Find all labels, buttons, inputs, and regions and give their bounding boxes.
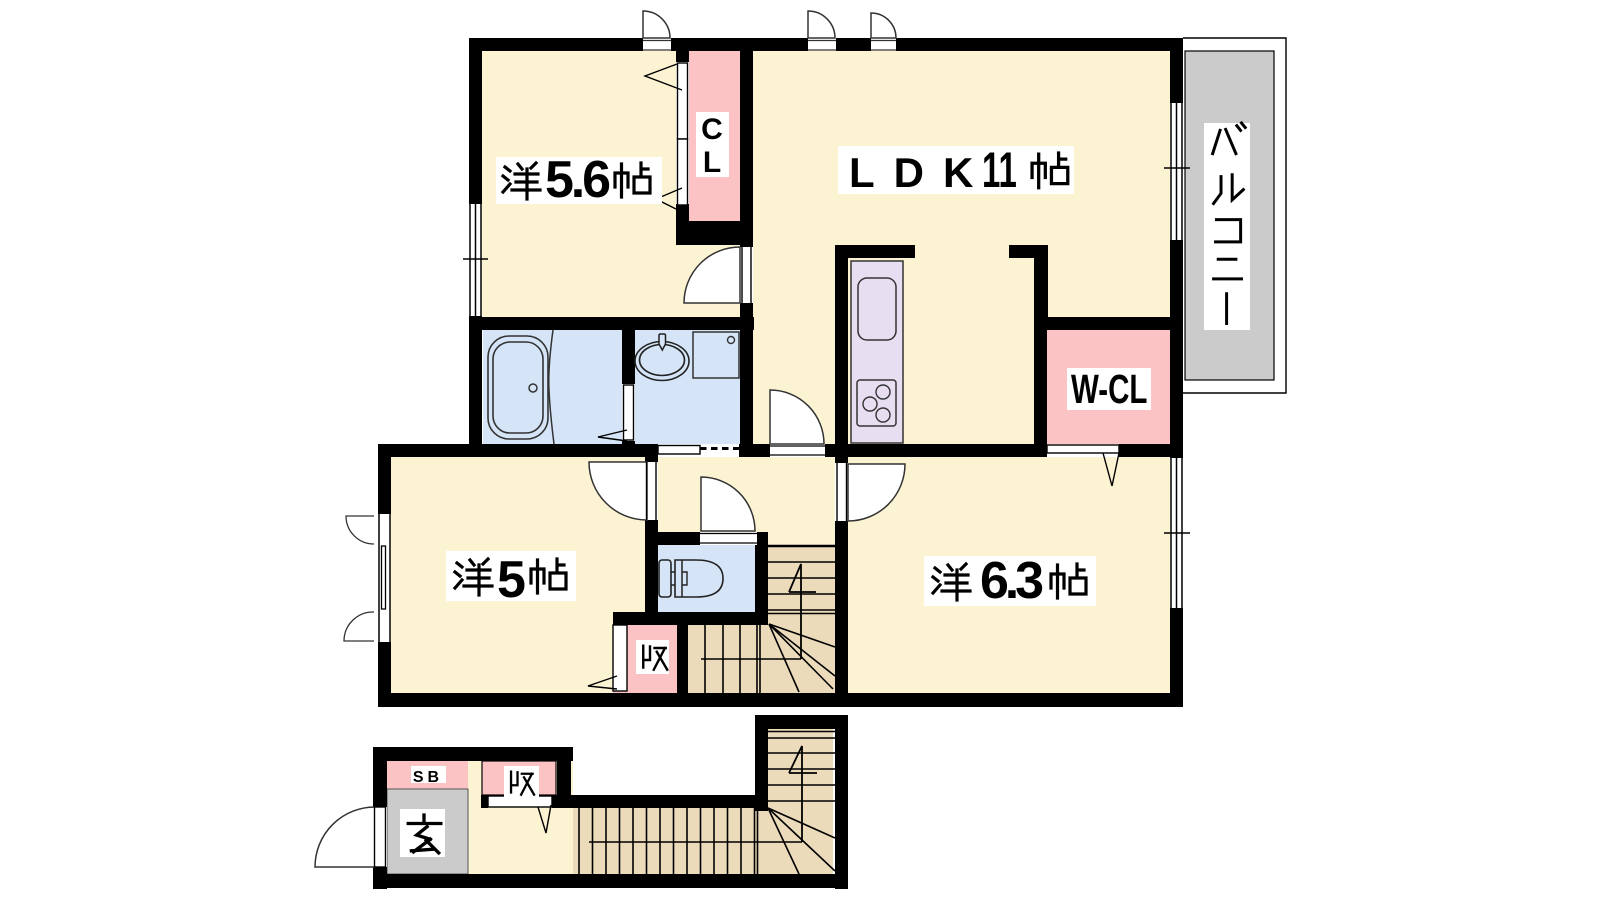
svg-text:5: 5 (497, 551, 526, 609)
svg-text:11: 11 (982, 142, 1017, 197)
svg-text:C: C (701, 113, 723, 146)
svg-text:L: L (703, 146, 721, 179)
svg-text:W-CL: W-CL (1071, 366, 1147, 412)
svg-text:SB: SB (413, 769, 443, 786)
svg-text:6.3: 6.3 (980, 552, 1044, 610)
svg-text:5.6: 5.6 (545, 151, 611, 209)
svg-text:LDK: LDK (849, 149, 992, 196)
